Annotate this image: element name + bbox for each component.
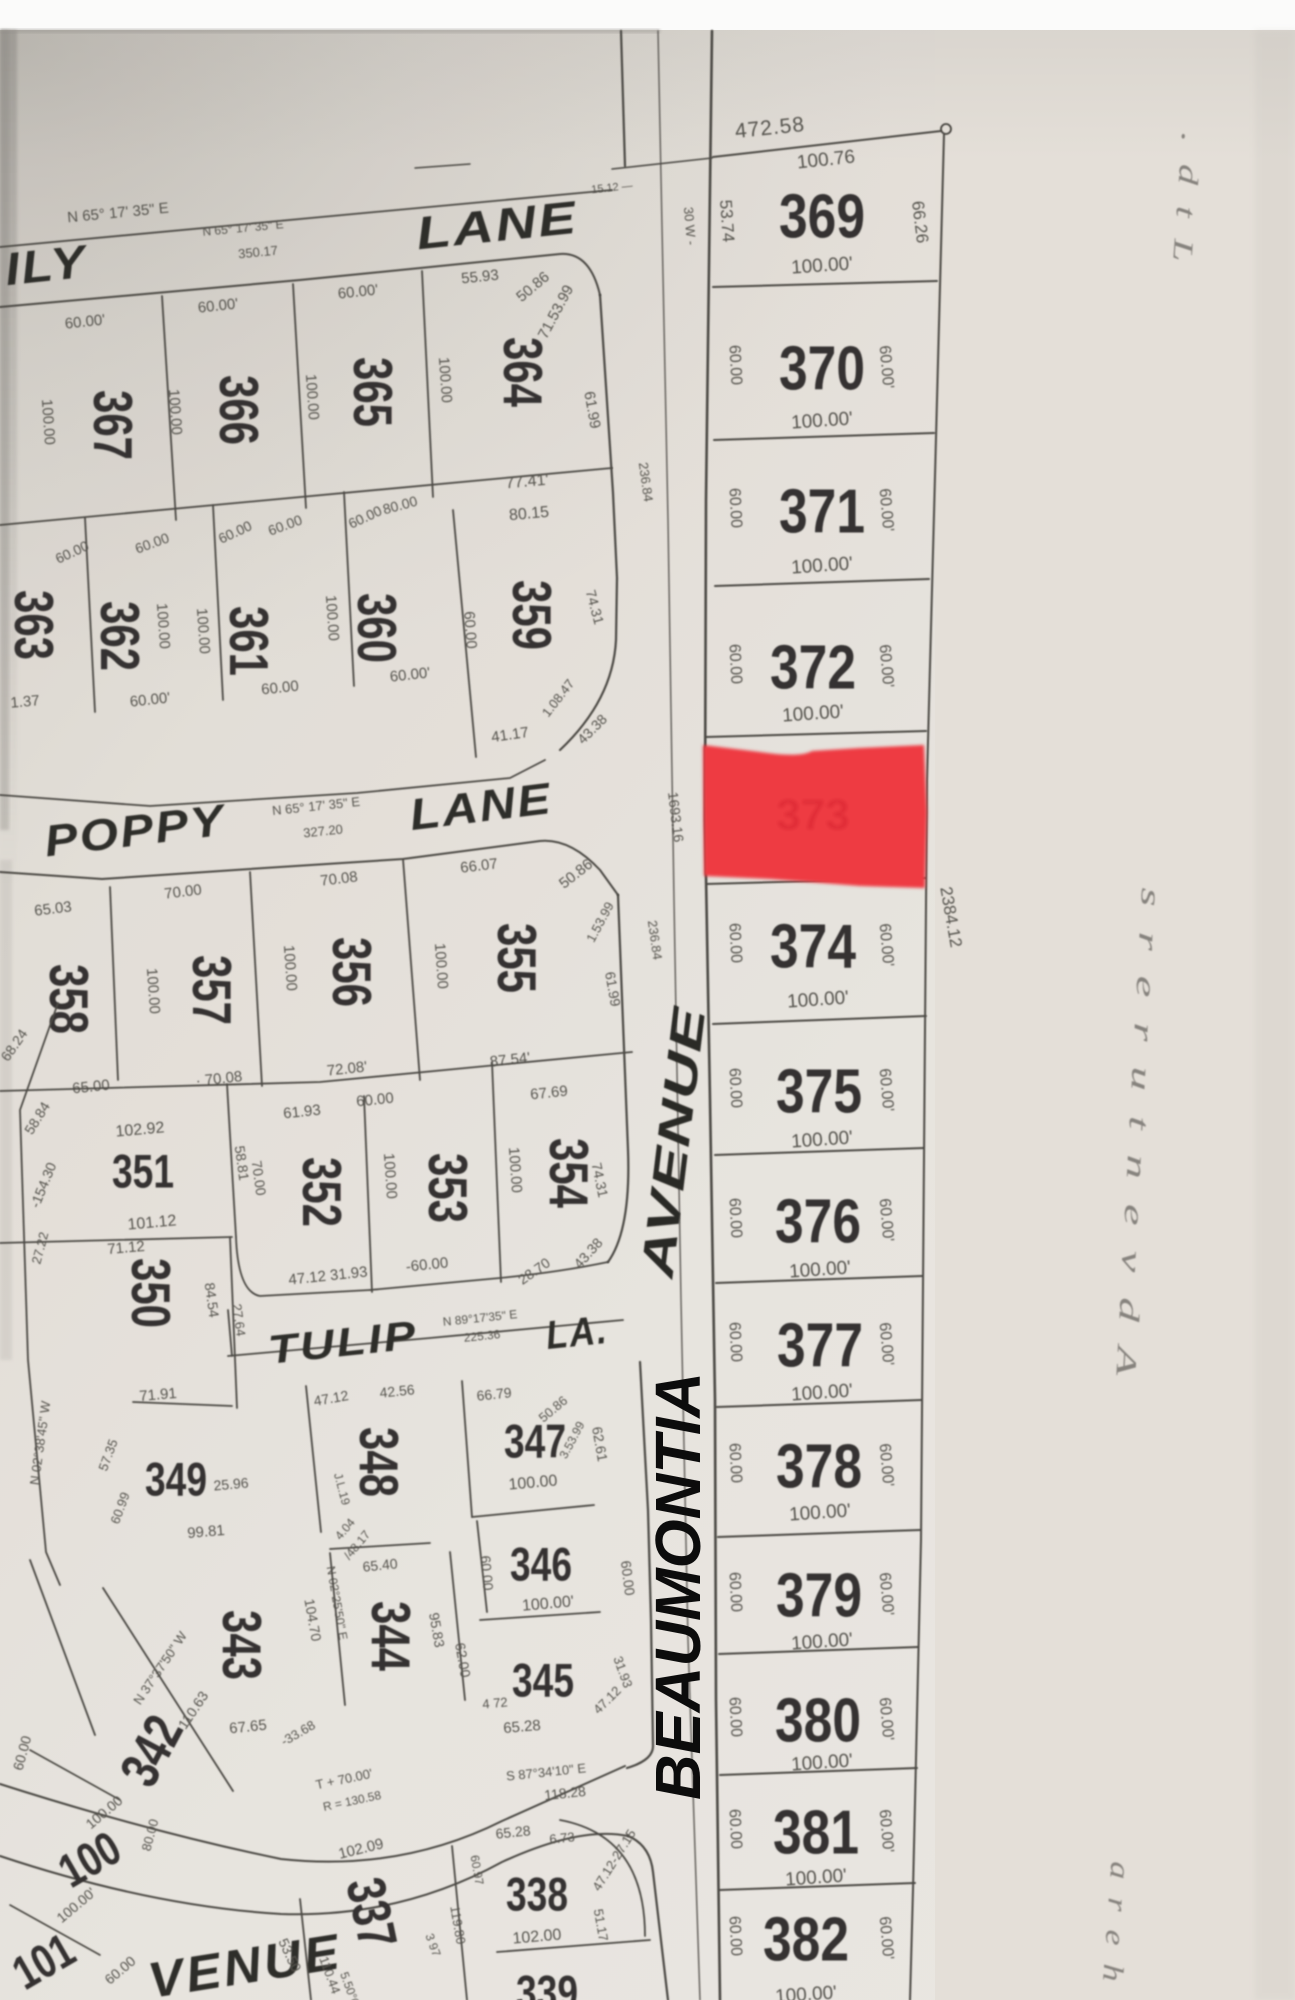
svg-text:373: 373 [776,791,849,840]
svg-text:100.00: 100.00 [143,968,163,1015]
svg-text:60.00: 60.00 [460,611,480,650]
svg-text:374: 374 [770,913,856,982]
svg-text:380: 380 [775,1687,861,1756]
svg-text:60.00: 60.00 [725,1916,744,1957]
svg-text:346: 346 [510,1538,572,1591]
svg-text:355: 355 [486,923,547,993]
svg-text:351: 351 [112,1145,174,1198]
svg-text:369: 369 [779,183,865,252]
svg-text:378: 378 [776,1433,862,1502]
svg-text:100.00: 100.00 [505,1147,525,1194]
svg-text:343: 343 [211,1610,272,1680]
svg-text:100.00: 100.00 [435,357,455,404]
svg-text:357: 357 [181,955,242,1025]
svg-text:100.00': 100.00' [790,1750,853,1775]
svg-text:362: 362 [89,601,150,671]
svg-text:344: 344 [360,1601,421,1671]
svg-text:100.00': 100.00' [790,253,853,278]
svg-text:372: 372 [770,634,856,703]
svg-text:4 72: 4 72 [482,1694,509,1711]
svg-text:100.00': 100.00' [788,1500,851,1525]
svg-text:100.00: 100.00 [322,595,342,642]
svg-text:371: 371 [779,478,865,547]
svg-text:60.00: 60.00 [725,1198,744,1239]
svg-text:60.00: 60.00 [725,1572,744,1613]
svg-text:60.00: 60.00 [725,488,744,529]
svg-text:LA.: LA. [544,1308,610,1358]
svg-text:25.96: 25.96 [213,1474,250,1493]
svg-text:100.00': 100.00' [790,1127,853,1152]
svg-text:354: 354 [538,1138,599,1208]
svg-text:345: 345 [512,1654,574,1707]
svg-text:382: 382 [763,1906,849,1975]
svg-text:356: 356 [321,937,382,1007]
svg-text:60.00: 60.00 [725,1068,744,1109]
svg-text:352: 352 [291,1157,352,1227]
svg-text:60.00: 60.00 [725,1443,744,1484]
svg-text:339: 339 [516,1966,578,2000]
svg-text:349: 349 [145,1453,207,1506]
svg-text:347: 347 [504,1415,566,1468]
svg-text:100.00: 100.00 [153,603,173,650]
svg-text:100.00': 100.00' [784,1865,847,1890]
svg-text:100.00': 100.00' [790,408,853,433]
svg-text:381: 381 [773,1799,859,1868]
svg-text:BEAUMONTIA: BEAUMONTIA [642,1372,714,1800]
svg-text:100.00: 100.00 [431,943,451,990]
svg-text:71.91: 71.91 [139,1385,178,1405]
svg-text:350: 350 [120,1258,181,1328]
svg-text:361: 361 [218,606,279,676]
svg-text:100.00: 100.00 [280,945,300,992]
svg-text:367: 367 [82,390,143,460]
svg-text:53.74: 53.74 [716,199,738,243]
svg-text:60.00: 60.00 [725,1697,744,1738]
svg-text:100.00': 100.00' [790,1629,853,1654]
svg-text:365: 365 [342,357,403,427]
svg-text:100.00: 100.00 [38,399,58,446]
svg-text:338: 338 [506,1868,568,1921]
svg-text:60.00: 60.00 [725,1809,744,1850]
svg-text:100.00: 100.00 [193,608,213,655]
svg-text:379: 379 [776,1562,862,1631]
svg-text:100.00: 100.00 [165,389,185,436]
svg-text:60.00: 60.00 [478,1555,497,1592]
svg-text:6.73: 6.73 [549,1829,576,1847]
svg-text:100.00': 100.00' [790,553,853,578]
svg-text:60.00: 60.00 [725,644,744,685]
svg-text:100.00': 100.00' [790,1380,853,1405]
svg-text:60.00: 60.00 [725,1322,744,1363]
svg-text:370: 370 [779,335,865,404]
svg-text:100.00: 100.00 [380,1153,400,1200]
svg-text:66.26: 66.26 [919,221,922,223]
svg-text:71.12: 71.12 [107,1238,146,1258]
svg-text:359: 359 [501,580,562,650]
svg-text:353: 353 [417,1153,478,1223]
svg-text:366: 366 [208,375,269,445]
svg-text:1.37: 1.37 [10,692,41,711]
svg-text:358: 358 [38,964,99,1034]
svg-text:65.28: 65.28 [503,1717,542,1737]
svg-text:100.00: 100.00 [302,374,322,421]
svg-text:100.00': 100.00' [786,987,849,1012]
svg-text:100.00': 100.00' [781,701,844,726]
svg-text:377: 377 [777,1312,863,1381]
svg-text:360: 360 [346,593,407,663]
svg-text:376: 376 [775,1188,861,1257]
svg-text:99.81: 99.81 [187,1522,226,1542]
svg-text:348: 348 [348,1427,409,1497]
svg-text:60.00: 60.00 [725,923,744,964]
svg-text:375: 375 [776,1058,862,1127]
svg-text:363: 363 [3,590,64,660]
svg-text:80.15: 80.15 [508,504,549,524]
svg-text:364: 364 [492,337,553,407]
svg-text:100.00': 100.00' [788,1257,851,1282]
svg-text:ILY: ILY [3,235,93,296]
svg-text:60.00: 60.00 [725,345,744,386]
